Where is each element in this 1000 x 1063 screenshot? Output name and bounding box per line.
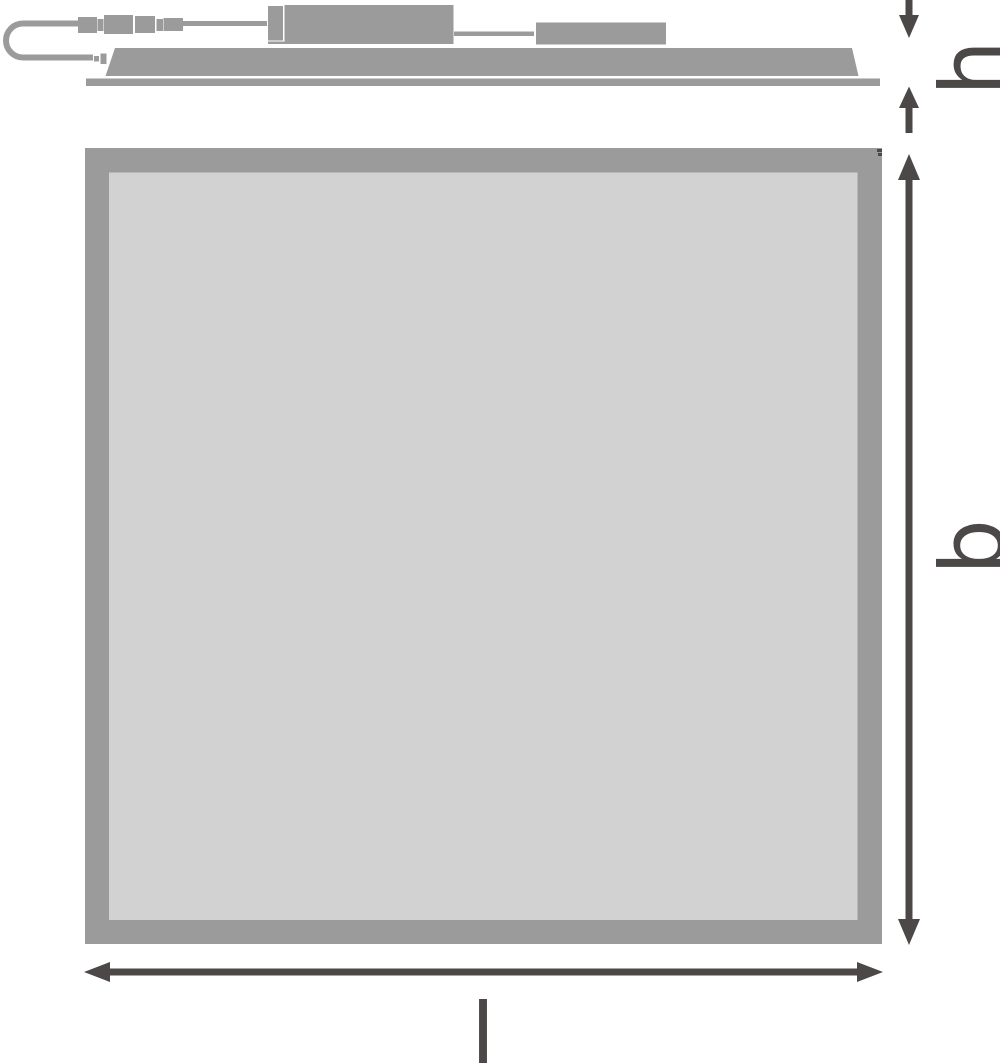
cable-segment <box>183 21 267 26</box>
technical-drawing <box>0 0 1000 1063</box>
dimension-l-line <box>108 969 859 976</box>
connector-segment <box>135 16 155 33</box>
panel-front-view <box>85 148 882 944</box>
dimension-l-right-arrow-icon <box>857 962 883 982</box>
connector-segment <box>104 15 133 34</box>
connector-segment <box>94 56 99 62</box>
dimension-h <box>899 0 919 133</box>
connector-segment <box>157 19 164 31</box>
dimension-h-bottom-tail <box>906 107 913 133</box>
connector-segment <box>78 17 97 33</box>
dimension-l <box>84 962 883 982</box>
panel-inlet-connector-icon <box>94 54 107 65</box>
led-driver-box <box>268 5 454 44</box>
connector-segment <box>164 18 184 31</box>
panel-base-plate <box>86 79 880 87</box>
dimension-b-top-arrow-icon <box>898 154 920 180</box>
connector-segment <box>98 19 104 31</box>
dimension-b-bottom-arrow-icon <box>898 919 920 945</box>
dimension-h-bottom-arrow-icon <box>899 87 919 109</box>
dimension-h-top-arrow-icon <box>899 15 919 38</box>
driver-end-tab <box>268 42 285 45</box>
panel-light-surface <box>109 173 858 921</box>
inline-connector-icon <box>78 15 183 34</box>
panel-side-view <box>6 5 880 86</box>
dimension-b-line <box>906 178 913 921</box>
cable-segment <box>454 32 534 37</box>
dimension-b <box>898 154 920 945</box>
terminal-box <box>536 23 666 45</box>
driver-body <box>285 5 454 44</box>
dimension-drawing-canvas: h b l <box>0 0 1000 1063</box>
dimension-h-top-tail <box>906 0 913 16</box>
connector-segment <box>101 54 107 65</box>
panel-profile-housing <box>106 48 859 76</box>
driver-end-cap <box>268 6 283 41</box>
dimension-l-left-arrow-icon <box>84 962 110 982</box>
